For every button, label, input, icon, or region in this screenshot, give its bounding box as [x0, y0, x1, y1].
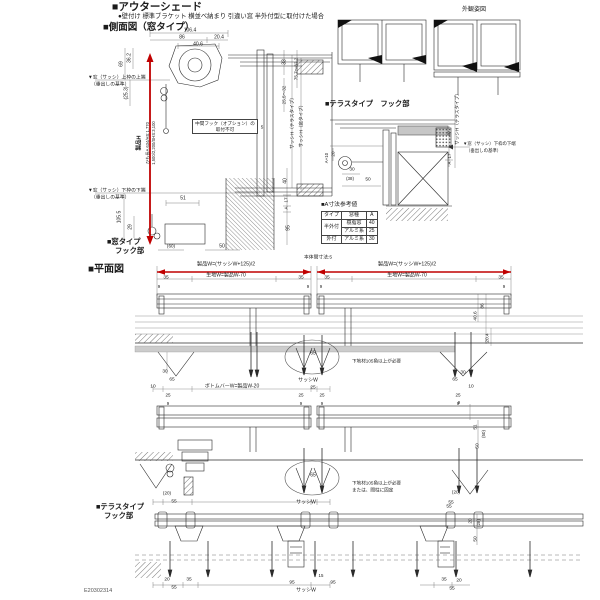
label-dims-s1_p9b: 9	[300, 402, 302, 406]
label-dims-s3_28r: (28)	[477, 519, 481, 527]
label-dims-s1_p25d: 25	[455, 394, 460, 399]
label-dims-s3_35a: 35	[186, 579, 191, 584]
page-title: ■アウターシェード	[112, 2, 202, 13]
a-table-cell: 樹脂窓	[342, 220, 367, 228]
label-dims-sv_29: 29	[129, 224, 134, 230]
window-hook-label-2: フック部	[115, 247, 144, 254]
a-table-cell: 半外付	[322, 220, 342, 236]
document-number: E20302314	[84, 589, 112, 595]
label-dims-s3_55b: 55	[449, 588, 454, 593]
label-side_view-product_note1: ひも長A 634/HS:1,770	[146, 122, 150, 164]
label-dims-sv_95: 95	[287, 225, 292, 231]
label-dims-s1_25L: 25	[310, 387, 315, 392]
a-table-col-a: A	[366, 212, 377, 220]
label-dims-sv_106_4: 106.4	[184, 29, 197, 34]
a-table-col-type: タイプ	[322, 212, 342, 220]
a-table-cell: 40	[366, 220, 377, 228]
label-dims-sv_20_4: 20.4	[214, 36, 224, 41]
label-dims-s2_50p: (50)	[482, 430, 486, 438]
label-dims-sv_17: 17	[285, 197, 290, 202]
label-dims-sv_25_5: 25.5～32	[283, 86, 288, 105]
label-dims-ter_50: 50	[365, 179, 370, 184]
terrace-hook-label-1: ■テラスタイプ	[96, 503, 144, 510]
drawing-linework	[0, 0, 600, 600]
label-dims-s1_10R: 10	[468, 386, 473, 391]
mid-hook-note-line1: 中間フック（オプション）の	[195, 121, 255, 127]
label-dims-sv_33: 33	[283, 59, 288, 65]
label-dims-sv_40: 40	[284, 178, 289, 184]
label-dims-p_9d: 9	[503, 285, 505, 289]
label-dims-sv_sash_ter: サッシH（テラスタイプ）	[291, 95, 296, 149]
label-dims-sv_105_5: 105.5	[118, 211, 123, 224]
label-dims-p_9a: 9	[158, 285, 160, 289]
label-dims-sv_40_6: 40.6	[193, 43, 203, 48]
label-dims-s3_15: 15	[319, 574, 324, 578]
label-side_view-datum_bottom_1: ▼窓（サッシ）下枠の下端	[88, 190, 146, 195]
label-dims-s1_20_4: 20.4	[487, 333, 492, 342]
a-table-cell: アルミ系	[342, 228, 367, 236]
label-dims-s3_20r: 20	[469, 518, 474, 523]
label-dims-p_35b: 35	[298, 277, 303, 282]
label-dims-ter_38: (38)	[346, 177, 354, 181]
label-side_view-datum_bottom_2: （垂出しの基準）	[91, 197, 129, 202]
label-dims-ter_20: 20	[332, 151, 337, 156]
label-dims-s2_9: 9	[458, 401, 460, 405]
label-dims-s1_p9c: 9	[321, 402, 323, 406]
page-subtitle: ●壁付け 標準ブラケット 横並べ納まり 引違い窓 半外付型に取付けた場合	[118, 14, 324, 20]
label-side_view-product_note2: 1,500/2,200/SHS:3,100	[152, 121, 156, 165]
label-side_view-datum_top_2: （垂出しの基準）	[91, 84, 129, 89]
label-dims-ter_17: 17	[448, 154, 452, 159]
label-dims-p_35a: 35	[163, 277, 168, 282]
a-table-cell: 25	[366, 228, 377, 236]
label-dims-s3_20a: 20	[164, 579, 169, 584]
label-dims-sv_60p: (60)	[167, 245, 175, 250]
label-dims-s1_p9a: 9	[167, 402, 169, 406]
a-table-cell: 外付	[322, 236, 342, 244]
label-plan-note2_1: 下地材105角以上が必要	[352, 482, 401, 487]
label-dims-sv_sash_win: サッシH（窓タイプ）	[300, 103, 305, 148]
label-plan-fabric_right: 生地W=製品W-70	[387, 274, 427, 279]
label-dims-ter_a10: A+10	[325, 153, 329, 163]
terrace-view-title: ■テラスタイプ フック部	[325, 100, 410, 107]
label-dims-p_35c: 35	[324, 277, 329, 282]
label-dims-s1_65c: 65	[310, 352, 316, 357]
label-dims-s3_95a: 95	[289, 582, 294, 587]
label-dims-sv_75: 75.7～82.2	[295, 58, 300, 80]
label-plan-w_left: 製品W=(サッシW+125)/2	[197, 262, 255, 267]
label-dims-s1_sashW: サッシW	[298, 379, 318, 384]
label-dims-s3_55a: 55	[171, 587, 176, 592]
label-dims-s1_10L: 10	[150, 386, 155, 391]
label-terrace_view-datum_2: （垂出しの基準）	[466, 149, 501, 153]
label-dims-s2_65c: 65	[310, 474, 316, 479]
label-dims-sv_69: 69	[120, 61, 125, 67]
a-table-cell: 30	[366, 236, 377, 244]
mid-hook-note: 中間フック（オプション）の 取付不可	[192, 119, 258, 134]
label-dims-s1_30L: 30	[162, 371, 167, 376]
label-dims-s1_86: 86	[482, 303, 487, 308]
label-dims-s3_sashW: サッシW	[296, 589, 316, 594]
label-plan-w_right: 製品W=(サッシW+125)/2	[378, 262, 436, 267]
side-view-title: ■側面図（窓タイプ）	[103, 23, 194, 33]
label-side_view-datum_top_1: ▼窓（サッシ）上枠の上端	[88, 77, 146, 82]
label-plan-note1: 下地材105角以上が必要	[352, 360, 401, 365]
label-plan-note2_2: または、間柱に固定	[352, 489, 393, 494]
label-dims-s3_95b: 95	[330, 582, 335, 587]
label-dims-s2_20p: (20)	[163, 492, 171, 497]
window-hook-label-1: ■窓タイプ	[107, 238, 141, 245]
label-dims-p_35d: 35	[498, 277, 503, 282]
a-dimension-table: タイプ 窓種 A 半外付 樹脂窓 40 アルミ系 25 外付 アルミ系 30	[321, 211, 378, 244]
label-dims-s1_p25a: 25	[165, 394, 170, 399]
label-plan-gap: 本体間寸法:5	[304, 257, 332, 262]
label-dims-s2_20pR: (20)	[452, 491, 460, 496]
label-plan-bottom_bar: ボトムバーW=製品W-20	[205, 385, 260, 390]
label-dims-p_9b: 9	[307, 285, 309, 289]
label-dims-s2_55: 55	[171, 501, 176, 506]
label-dims-s1_30R: 30	[460, 372, 465, 377]
a-table-cell: アルミ系	[342, 236, 367, 244]
label-dims-s3_35b: 35	[441, 579, 446, 584]
a-table-col-window: 窓種	[342, 212, 367, 220]
label-dims-s1_65R: 65	[452, 379, 457, 384]
elevation-title: 外観姿図	[462, 7, 486, 13]
label-dims-s1_65L: 65	[169, 379, 174, 384]
cad-sheet: ■アウターシェード ●壁付け 標準ブラケット 横並べ納まり 引違い窓 半外付型に…	[0, 0, 600, 600]
label-dims-sv_25_3: (25.3)	[125, 86, 130, 99]
label-dims-sv_A: A	[285, 206, 290, 209]
label-dims-s3_55top: 55	[446, 506, 451, 511]
label-dims-ter_sash: サッシH（テラスタイプ）	[456, 91, 461, 145]
label-terrace_view-datum_1: ▼窓（サッシ）下枠の下端	[463, 142, 516, 146]
label-dims-s2_50: 50	[477, 443, 482, 448]
label-dims-sv_86: 86	[179, 36, 185, 41]
a-table-title: ■A寸法参考値	[321, 203, 357, 209]
label-plan-fabric_left: 生地W=製品W-70	[206, 274, 246, 279]
label-dims-sv_5: 5	[261, 126, 264, 131]
label-dims-s3_20b: 20	[456, 580, 461, 585]
label-side_view-product_h: 製品H	[137, 136, 143, 151]
label-dims-s2_sashW: サッシW	[296, 501, 316, 506]
label-dims-sv_51: 51	[180, 197, 186, 202]
label-dims-p_9c: 9	[320, 285, 322, 289]
label-dims-ter_30: 30	[349, 169, 354, 174]
label-dims-sv_36_2: 36.2	[128, 53, 133, 63]
mid-hook-note-line2: 取付不可	[195, 127, 255, 133]
label-dims-s3_50r: 50	[475, 536, 480, 541]
label-dims-s1_p25b: 25	[298, 394, 303, 399]
terrace-hook-label-2: フック部	[104, 512, 133, 519]
label-dims-ter_40: 40	[449, 131, 454, 136]
label-dims-sv_50: 50	[219, 245, 225, 250]
label-dims-s1_40_6: 40.6	[475, 311, 480, 320]
label-dims-s2_51: 51	[475, 424, 480, 429]
plan-view-title: ■平面図	[88, 265, 124, 275]
label-dims-s1_p25c: 25	[319, 394, 324, 399]
label-dims-ter_A: A	[448, 162, 452, 165]
